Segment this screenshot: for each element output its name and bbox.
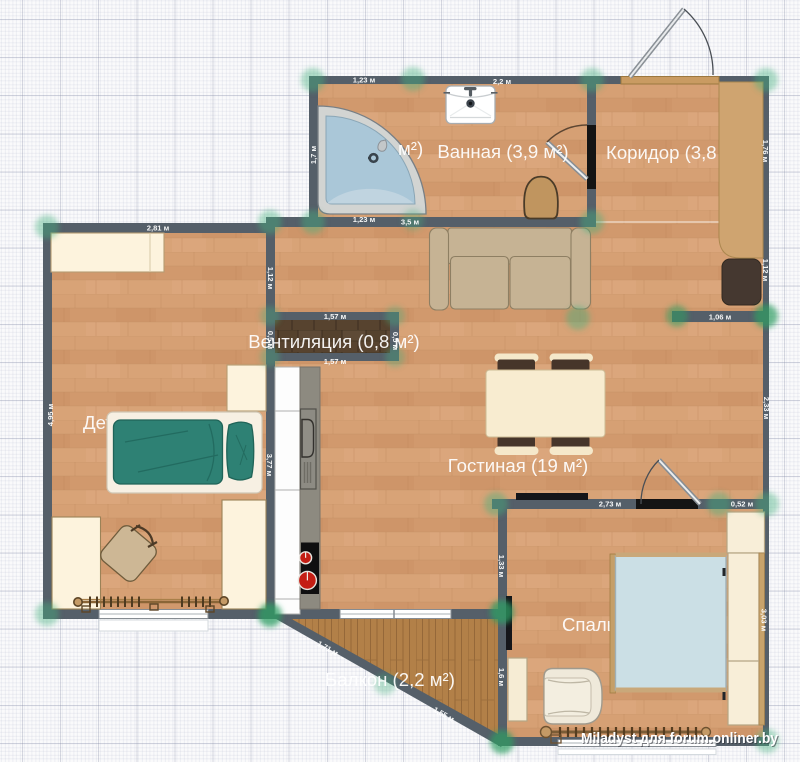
svg-text:1,76 м: 1,76 м [761, 140, 770, 163]
svg-text:4,95 м: 4,95 м [46, 403, 55, 426]
svg-text:1,06 м: 1,06 м [709, 313, 732, 322]
svg-text:1,23 м: 1,23 м [353, 76, 376, 85]
svg-text:3,03 м: 3,03 м [760, 609, 769, 632]
svg-text:0,5 м: 0,5 м [391, 332, 400, 351]
svg-text:3,77 м: 3,77 м [265, 454, 274, 477]
svg-text:Miladyst для forum.onliner.by: Miladyst для forum.onliner.by [581, 731, 778, 747]
svg-text:0,52 м: 0,52 м [731, 500, 754, 509]
svg-text:м²): м²) [398, 138, 423, 159]
svg-text:0,5 м: 0,5 м [266, 331, 275, 350]
svg-text:2,2 м: 2,2 м [493, 77, 512, 86]
svg-text:2,81 м: 2,81 м [147, 224, 170, 233]
svg-text:2,73 м: 2,73 м [599, 500, 622, 509]
svg-text:1,33 м: 1,33 м [497, 555, 506, 578]
svg-text:Гостиная (19 м²): Гостиная (19 м²) [448, 455, 588, 476]
svg-text:1,12 м: 1,12 м [761, 259, 770, 282]
svg-text:3,5 м: 3,5 м [401, 218, 420, 227]
svg-text:2,33 м: 2,33 м [762, 397, 771, 420]
svg-text:1,7 м: 1,7 м [309, 145, 318, 164]
svg-text:1,57 м: 1,57 м [324, 312, 347, 321]
svg-text:1,6 м: 1,6 м [497, 668, 506, 687]
svg-text:1,57 м: 1,57 м [324, 357, 347, 366]
svg-text:Балкон (2,2 м²): Балкон (2,2 м²) [325, 669, 455, 690]
svg-text:1,23 м: 1,23 м [353, 215, 376, 224]
svg-text:Ванная (3,9 м²): Ванная (3,9 м²) [437, 141, 568, 162]
svg-text:1,12 м: 1,12 м [266, 267, 275, 290]
